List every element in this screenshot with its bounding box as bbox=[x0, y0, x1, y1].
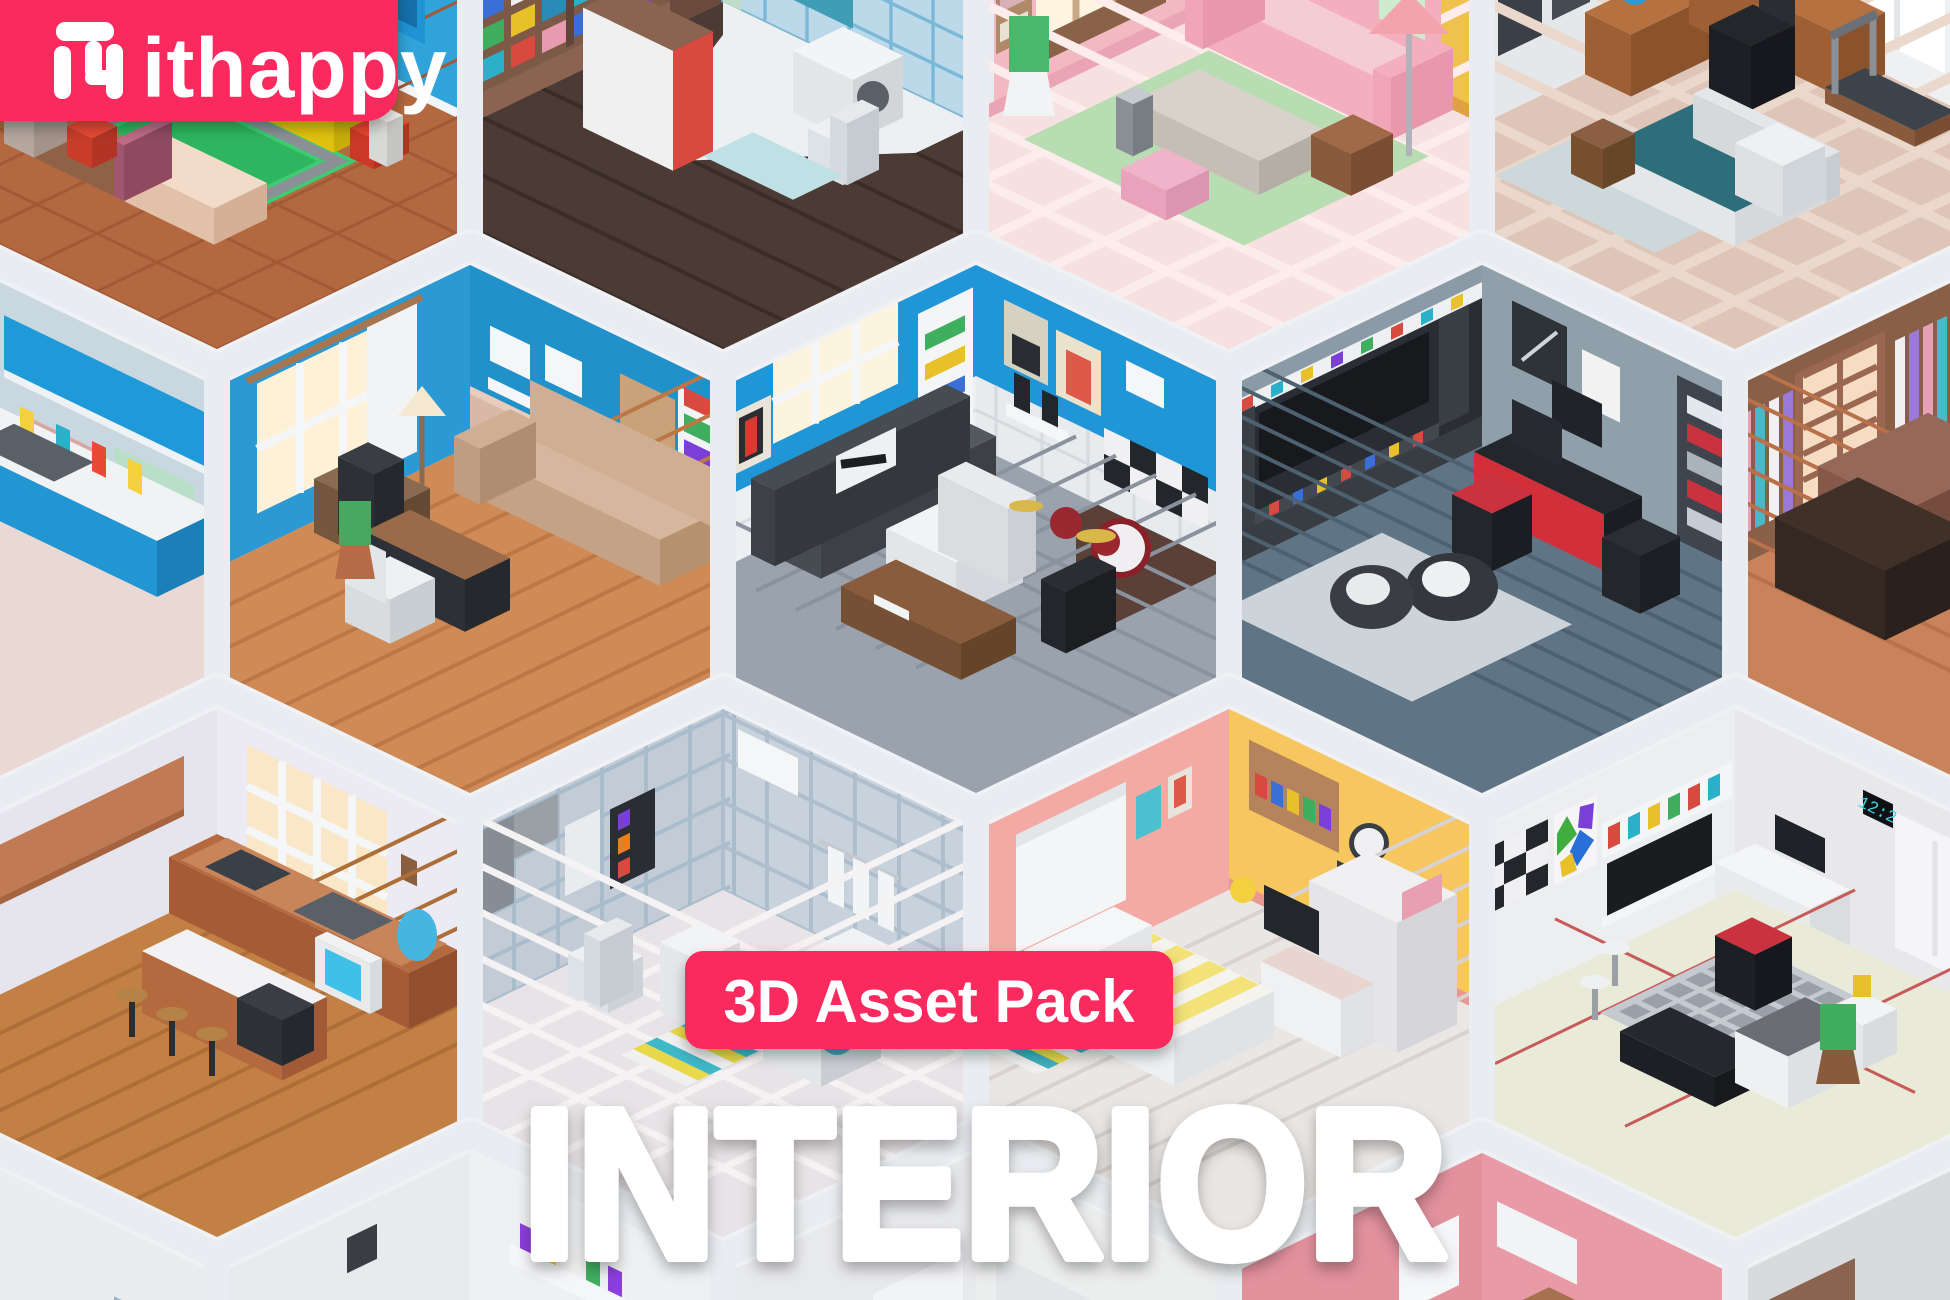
svg-text:INTERIOR: INTERIOR bbox=[523, 1065, 1448, 1300]
svg-text:3D Asset Pack: 3D Asset Pack bbox=[723, 968, 1135, 1035]
svg-text:ithappy: ithappy bbox=[142, 21, 448, 115]
